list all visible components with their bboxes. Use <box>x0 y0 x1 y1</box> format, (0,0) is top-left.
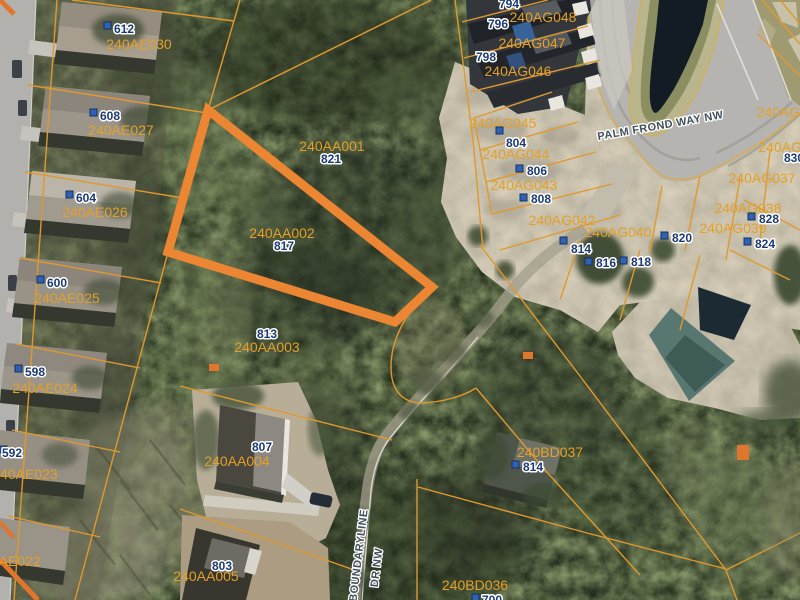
svg-text:806: 806 <box>527 164 547 178</box>
svg-text:240AA003: 240AA003 <box>234 339 300 355</box>
svg-text:240AA004: 240AA004 <box>204 453 270 469</box>
svg-text:803: 803 <box>212 559 232 573</box>
svg-text:598: 598 <box>25 365 45 379</box>
svg-text:828: 828 <box>759 212 779 226</box>
svg-text:240BD036: 240BD036 <box>442 577 508 593</box>
svg-text:240AE022: 240AE022 <box>0 553 41 569</box>
svg-text:240AG046: 240AG046 <box>485 63 552 79</box>
svg-text:821: 821 <box>321 152 341 166</box>
svg-text:612: 612 <box>114 22 134 36</box>
svg-text:240AE024: 240AE024 <box>12 380 78 396</box>
svg-text:592: 592 <box>2 446 22 460</box>
svg-text:818: 818 <box>631 255 651 269</box>
svg-text:240AG039: 240AG039 <box>700 220 767 236</box>
svg-text:824: 824 <box>755 237 775 251</box>
svg-text:817: 817 <box>274 239 294 253</box>
svg-text:240AG043: 240AG043 <box>491 177 558 193</box>
svg-text:808: 808 <box>531 192 551 206</box>
svg-text:240AG056: 240AG056 <box>757 104 800 120</box>
svg-text:830: 830 <box>784 151 800 165</box>
svg-text:240AG037: 240AG037 <box>729 170 796 186</box>
svg-text:240AE025: 240AE025 <box>34 290 100 306</box>
svg-text:600: 600 <box>47 276 67 290</box>
svg-text:240AG047: 240AG047 <box>499 35 566 51</box>
svg-text:813: 813 <box>257 327 277 341</box>
svg-text:807: 807 <box>252 440 272 454</box>
svg-text:804: 804 <box>506 136 526 150</box>
svg-text:604: 604 <box>76 191 96 205</box>
svg-text:820: 820 <box>672 231 692 245</box>
svg-text:814: 814 <box>523 460 543 474</box>
svg-text:240AE023: 240AE023 <box>0 466 58 482</box>
svg-text:240BD037: 240BD037 <box>517 444 583 460</box>
svg-text:608: 608 <box>100 109 120 123</box>
svg-text:240AG048: 240AG048 <box>510 9 577 25</box>
svg-text:240AG040: 240AG040 <box>585 224 652 240</box>
svg-text:240AE027: 240AE027 <box>88 122 154 138</box>
svg-text:798: 798 <box>476 50 496 64</box>
svg-text:240AE026: 240AE026 <box>62 204 128 220</box>
svg-text:796: 796 <box>488 17 508 31</box>
svg-text:816: 816 <box>596 256 616 270</box>
svg-text:814: 814 <box>571 242 591 256</box>
svg-text:794: 794 <box>499 0 519 11</box>
svg-text:240AE030: 240AE030 <box>106 36 172 52</box>
svg-text:700: 700 <box>482 593 502 600</box>
